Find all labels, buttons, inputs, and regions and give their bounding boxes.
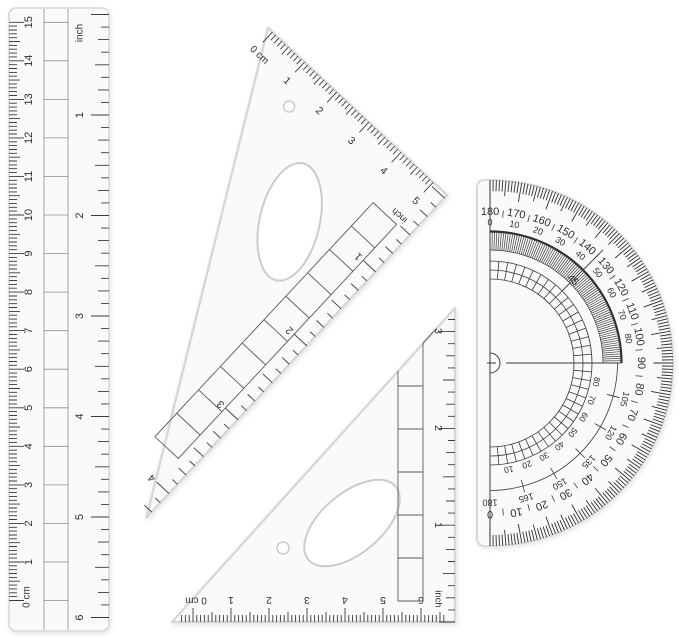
svg-text:1: 1 [74, 112, 86, 118]
svg-text:1: 1 [432, 522, 444, 528]
svg-text:0 cm: 0 cm [22, 586, 33, 608]
svg-text:6: 6 [23, 366, 35, 372]
geometry-set-scene: 0 cm123456789101112131415inch123456 0 cm… [0, 0, 679, 637]
svg-text:9: 9 [23, 251, 35, 257]
svg-text:4: 4 [23, 443, 35, 449]
svg-text:2: 2 [23, 520, 35, 526]
svg-text:0: 0 [487, 217, 492, 227]
svg-text:5: 5 [74, 514, 86, 520]
svg-text:10: 10 [509, 505, 523, 519]
svg-text:80: 80 [591, 376, 603, 387]
svg-text:180: 180 [482, 498, 497, 508]
svg-text:180: 180 [481, 206, 499, 218]
svg-text:inch: inch [75, 24, 86, 42]
svg-text:2: 2 [432, 425, 444, 431]
svg-text:0 cm: 0 cm [185, 594, 207, 605]
svg-text:4: 4 [74, 413, 86, 419]
svg-text:13: 13 [23, 93, 35, 105]
svg-text:2: 2 [266, 594, 272, 606]
svg-text:12: 12 [23, 132, 35, 144]
protractor: 1801701601501401301201101009080706050403… [477, 180, 673, 546]
svg-text:10: 10 [503, 464, 514, 476]
svg-text:80: 80 [623, 333, 635, 345]
svg-text:90: 90 [635, 357, 647, 369]
hang-hole [277, 542, 289, 554]
svg-text:3: 3 [74, 313, 86, 319]
svg-text:4: 4 [342, 594, 348, 606]
svg-text:10: 10 [509, 219, 521, 231]
svg-text:14: 14 [23, 55, 35, 67]
svg-text:11: 11 [23, 171, 35, 182]
svg-text:5: 5 [23, 405, 35, 411]
svg-text:2: 2 [74, 212, 86, 218]
svg-text:8: 8 [23, 289, 35, 295]
svg-text:3: 3 [304, 594, 310, 606]
svg-text:0: 0 [487, 508, 493, 520]
svg-text:6: 6 [74, 614, 86, 620]
svg-text:inch: inch [432, 590, 443, 607]
geometry-set-photo: 0 cm123456789101112131415inch123456 0 cm… [0, 0, 679, 637]
svg-text:7: 7 [23, 328, 35, 334]
svg-text:15: 15 [23, 16, 35, 28]
svg-text:1: 1 [23, 559, 35, 565]
ruler: 0 cm123456789101112131415inch123456 [9, 8, 109, 631]
svg-text:3: 3 [23, 482, 35, 488]
svg-text:1: 1 [228, 594, 234, 606]
svg-text:80: 80 [632, 382, 646, 396]
svg-text:10: 10 [23, 209, 35, 221]
svg-text:5: 5 [380, 594, 386, 606]
